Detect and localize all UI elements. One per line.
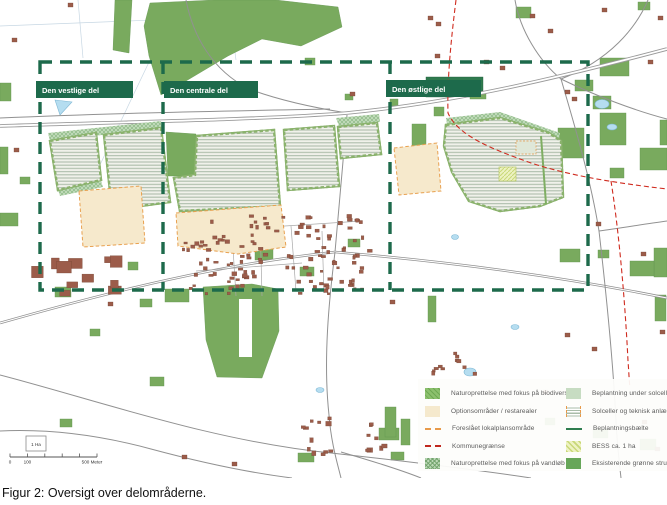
figure: Den vestlige del Den centrale del Den øs… [0,0,667,505]
legend-label: Beplantningsbælte [593,425,649,432]
option-area-west [79,186,145,247]
scale-zero: 0 [9,460,12,465]
legend-swatch-naturoprettelse-vandloeb-icon [425,458,440,469]
legend-item: Naturoprettelse med fokus på biodiversit… [425,388,577,399]
legend-label: Naturoprettelse med fokus på biodiversit… [451,390,577,397]
legend-label: Solceller og teknisk anlæg [592,408,667,415]
legend-label: Eksisterende grønne strukturer [592,460,667,467]
area-label-east: Den østlige del [386,80,481,97]
option-area-east [394,143,441,195]
legend-swatch-solceller-teknisk-anlaeg-icon [566,406,581,417]
legend-label: Beplantning under solceller [592,390,667,397]
legend-label: Kommunegrænse [452,443,505,450]
legend-label: BESS ca. 1 ha [592,443,636,450]
legend-swatch-kommunegraense-icon [425,445,441,447]
legend-label: Foreslået lokalplansområde [452,425,534,432]
legend-label: Naturoprettelse med fokus på vandløb [451,460,565,467]
scale-hundred: 100 [24,460,32,465]
area-label-central-text: Den centrale del [170,86,228,95]
legend-swatch-beplantningsbaelte-icon [566,428,582,430]
legend-column-left: Naturoprettelse med fokus på biodiversit… [425,388,577,476]
legend-swatch-beplantning-under-solceller-icon [566,388,581,399]
scale-area-unit: 1 Ha [31,442,41,447]
scale-end: 500 Meter [82,460,103,465]
legend-item: Solceller og teknisk anlæg [566,406,667,417]
legend-swatch-naturoprettelse-biodiversitet-icon [425,388,440,399]
legend-swatch-bess-icon [566,441,581,452]
area-label-west-text: Den vestlige del [42,86,99,95]
legend-item: Kommunegrænse [425,441,577,452]
legend-item: Foreslået lokalplansområde [425,423,577,434]
map-legend: Naturoprettelse med fokus på biodiversit… [418,379,667,471]
figure-caption: Figur 2: Oversigt over delområderne. [2,486,206,500]
legend-column-right: Beplantning under solceller Solceller og… [566,388,667,476]
legend-item: Beplantning under solceller [566,388,667,399]
legend-swatch-eksisterende-groenne-strukturer-icon [566,458,581,469]
legend-item: Beplantningsbælte [566,423,667,434]
legend-item: Naturoprettelse med fokus på vandløb [425,458,577,469]
area-label-west: Den vestlige del [36,81,133,98]
area-label-east-text: Den østlige del [392,85,445,94]
legend-swatch-lokalplansomraade-icon [425,428,441,430]
legend-label: Optionsområder / restarealer [451,408,537,415]
area-label-central: Den centrale del [164,81,258,98]
bess-area [499,167,516,181]
legend-item: Optionsområder / restarealer [425,406,577,417]
legend-item: BESS ca. 1 ha [566,441,667,452]
legend-item: Eksisterende grønne strukturer [566,458,667,469]
legend-swatch-optionsomraader-icon [425,406,440,417]
